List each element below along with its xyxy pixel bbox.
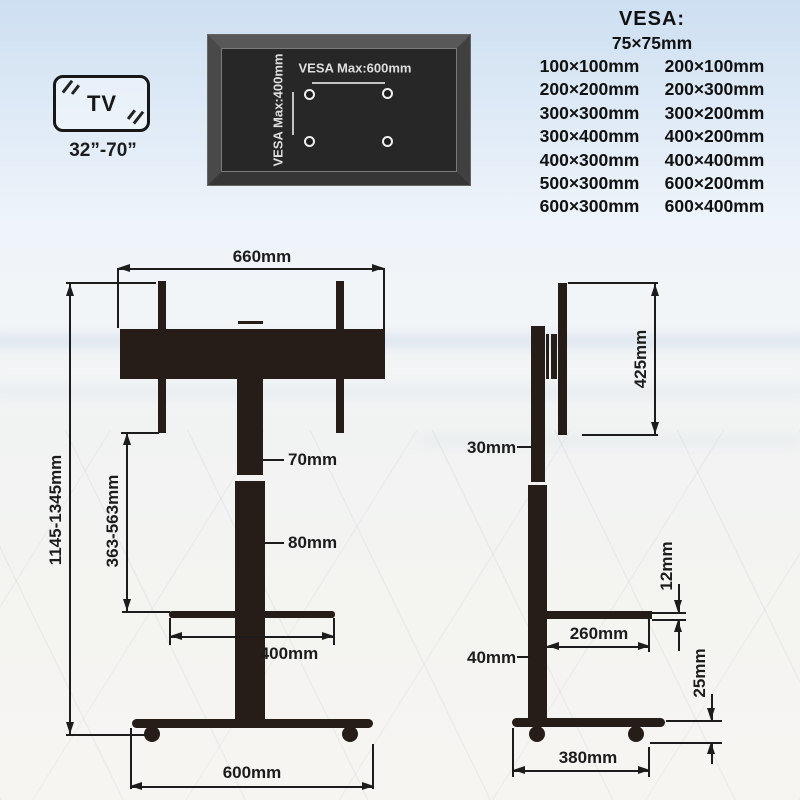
shelf-side: [547, 611, 652, 619]
arrowhead: [651, 422, 659, 434]
leader-line: [517, 446, 532, 448]
dim-line: [711, 742, 713, 764]
extension-line: [666, 720, 722, 722]
arrowhead: [638, 766, 650, 774]
extension-line: [568, 282, 658, 284]
dim-line: [678, 620, 680, 651]
wheel: [529, 726, 545, 742]
leader-line: [517, 656, 530, 658]
extension-line: [652, 612, 686, 614]
arrowhead: [547, 642, 559, 650]
arrowhead: [674, 600, 682, 612]
lower-column-side: [528, 485, 547, 719]
side-bracket-height-label: 425mm: [632, 330, 650, 389]
side-base-depth-label: 380mm: [559, 749, 618, 767]
side-lower-column-depth-label: 40mm: [467, 649, 516, 667]
arrowhead: [651, 284, 659, 296]
side-upper-column-depth-label: 30mm: [467, 439, 516, 457]
bracket-hook: [546, 334, 549, 379]
product-dimension-diagram: TV 32”-70” VESA Max:600mm VESA Max:400mm…: [0, 0, 800, 800]
extension-line: [582, 434, 658, 436]
arrowhead: [638, 642, 650, 650]
arrowhead: [707, 708, 715, 720]
side-base-height-label: 25mm: [691, 648, 709, 697]
side-shelf-depth-label: 260mm: [570, 625, 629, 643]
dim-line: [547, 646, 650, 648]
upper-column-side: [531, 326, 545, 482]
dim-line: [654, 284, 656, 434]
side-shelf-thickness-label: 12mm: [658, 541, 676, 590]
side-view: 425mm 30mm 12mm 260mm 40mm 25mm: [0, 0, 800, 800]
wheel: [628, 726, 644, 742]
bracket-hook: [551, 334, 557, 379]
arrowhead: [513, 766, 525, 774]
dim-line: [513, 770, 650, 772]
tv-bracket-side: [558, 283, 567, 435]
